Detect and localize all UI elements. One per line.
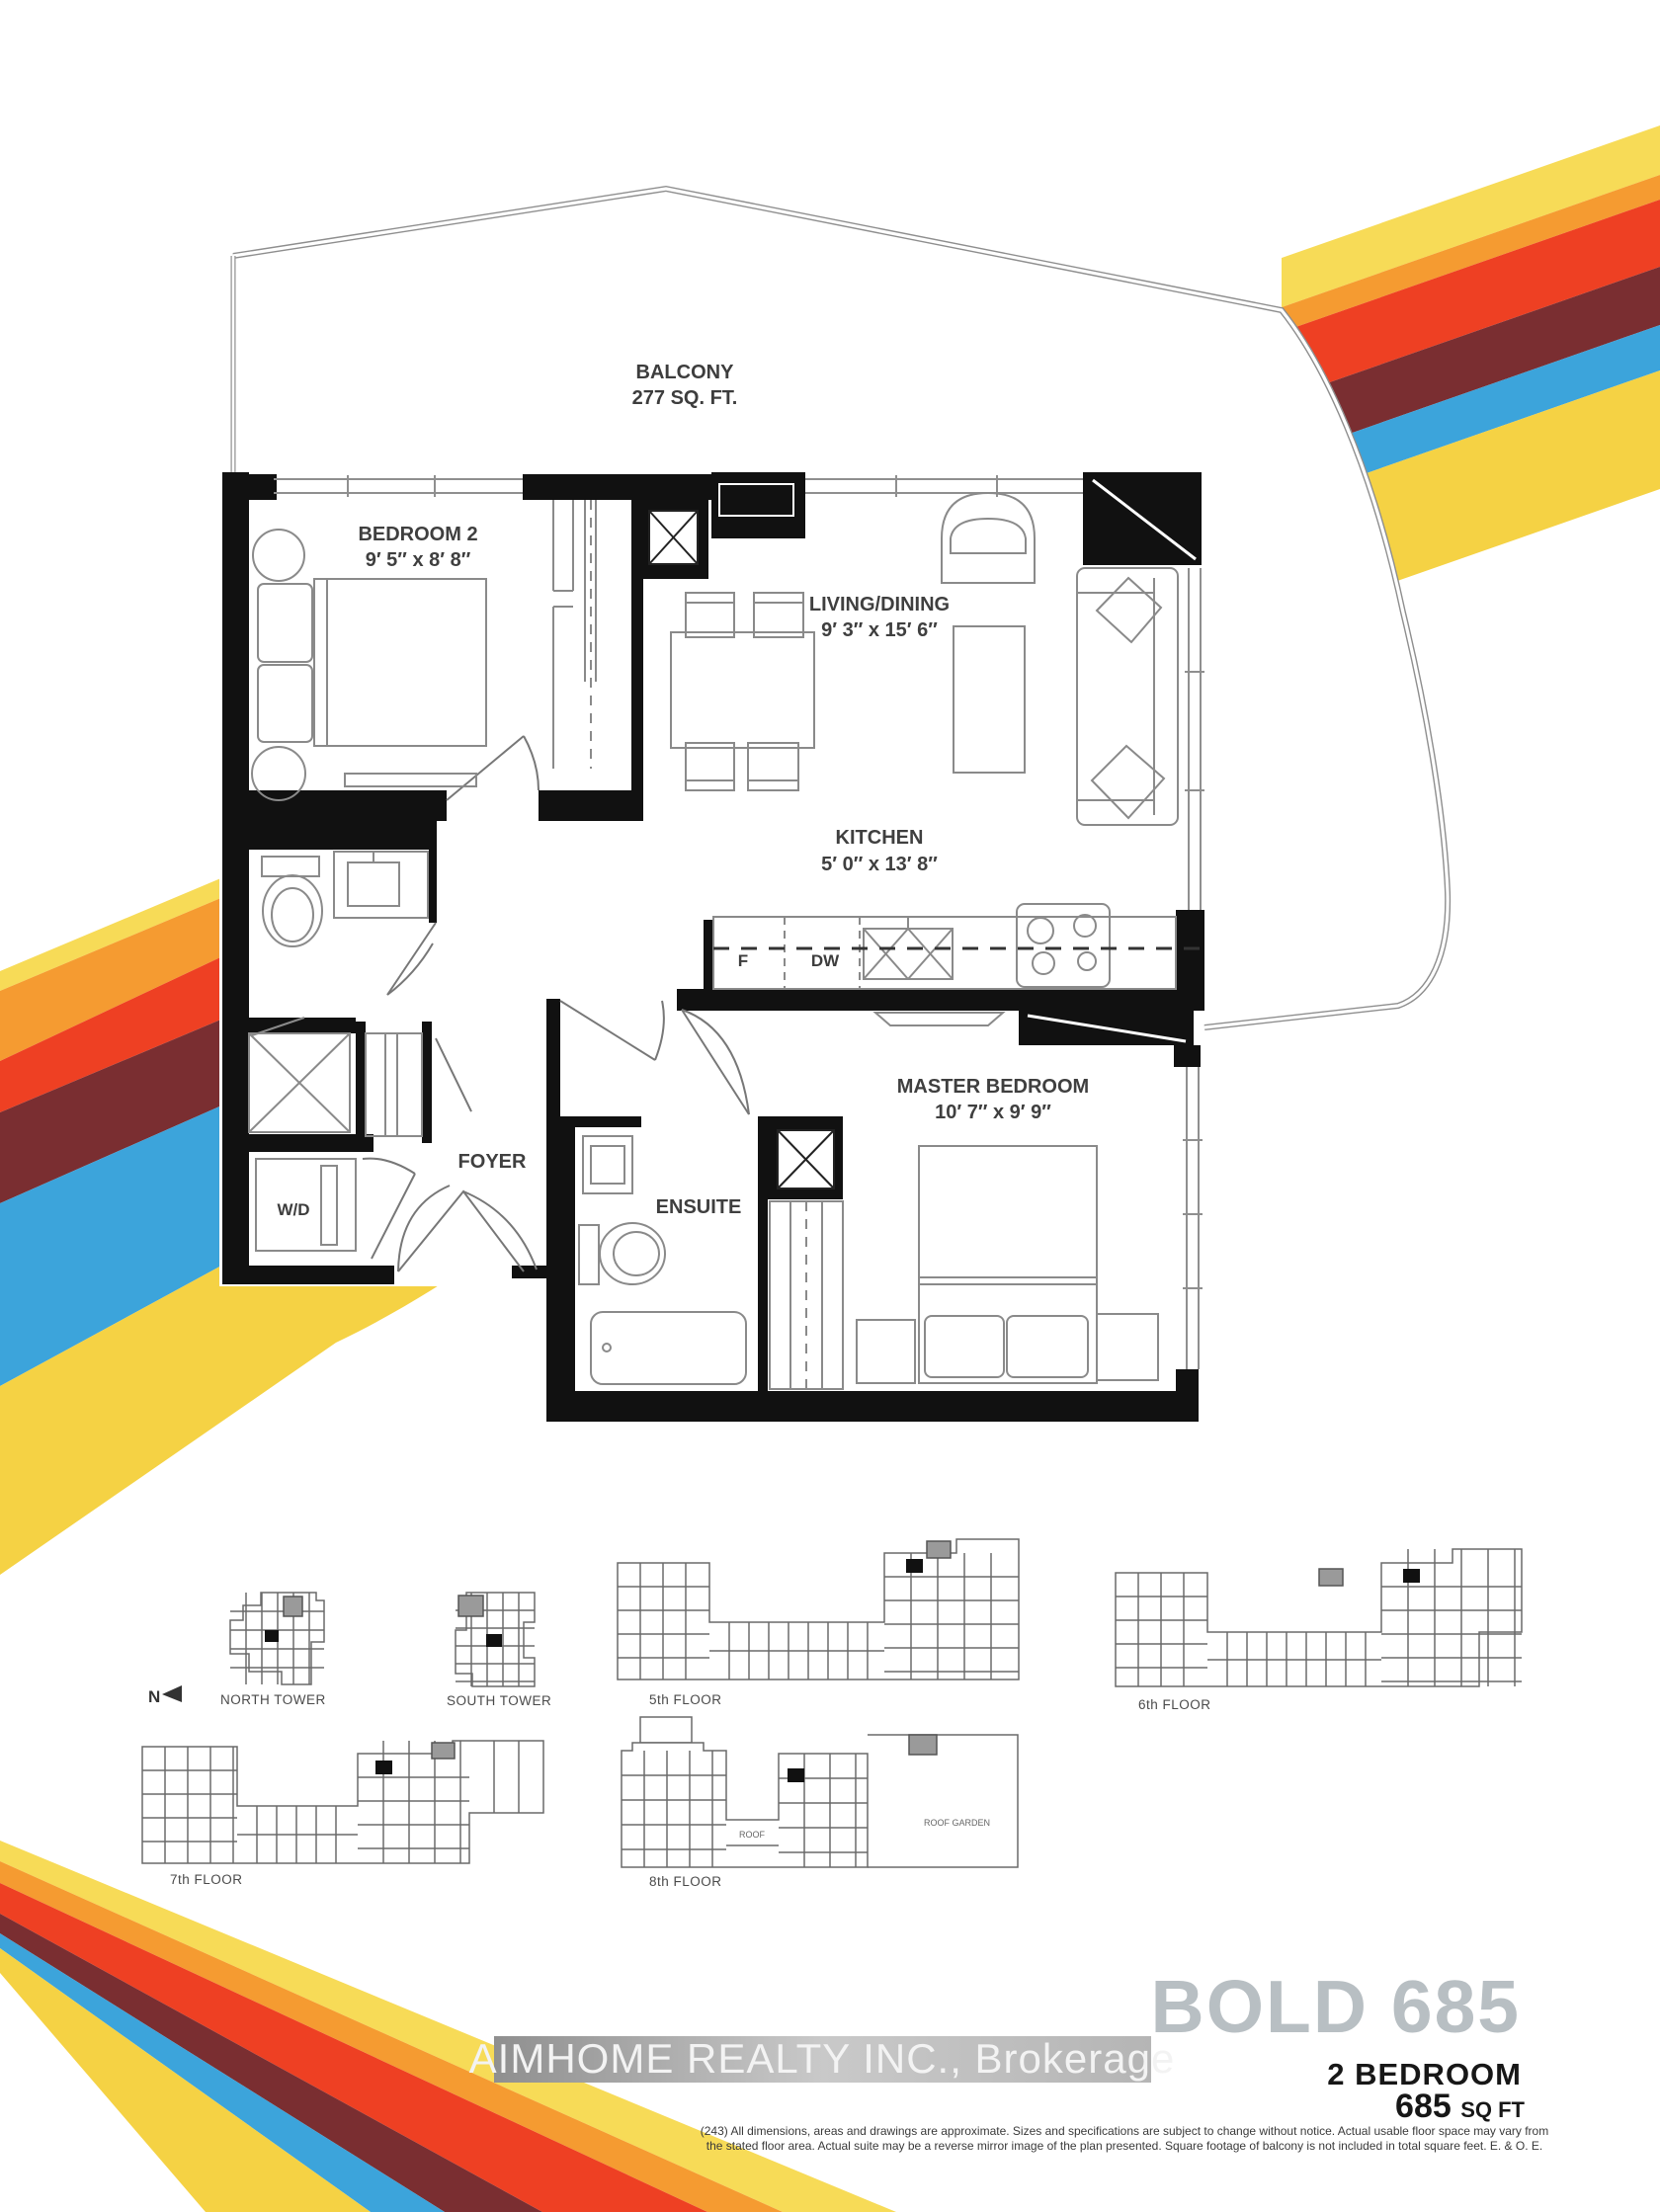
svg-text:the stated floor area. Actual: the stated floor area. Actual suite may … xyxy=(706,2139,1542,2153)
svg-text:KITCHEN: KITCHEN xyxy=(836,827,924,849)
svg-text:BOLD 685: BOLD 685 xyxy=(1151,1965,1521,2048)
svg-text:10′ 7″ x 9′ 9″: 10′ 7″ x 9′ 9″ xyxy=(935,1102,1051,1123)
svg-text:685 SQ FT: 685 SQ FT xyxy=(1395,2088,1526,2125)
svg-text:F: F xyxy=(738,951,748,970)
svg-text:LIVING/DINING: LIVING/DINING xyxy=(809,594,950,615)
svg-text:(243) All dimensions, areas an: (243) All dimensions, areas and drawings… xyxy=(701,2124,1548,2138)
svg-text:BALCONY: BALCONY xyxy=(636,362,735,383)
svg-text:DW: DW xyxy=(811,951,840,970)
svg-text:AIMHOME REALTY INC., Brokerage: AIMHOME REALTY INC., Brokerage xyxy=(469,2035,1176,2082)
svg-text:277 SQ. FT.: 277 SQ. FT. xyxy=(632,387,738,409)
svg-text:5′ 0″ x 13′ 8″: 5′ 0″ x 13′ 8″ xyxy=(821,854,938,875)
svg-text:8th FLOOR: 8th FLOOR xyxy=(649,1874,722,1889)
svg-text:ROOF GARDEN: ROOF GARDEN xyxy=(924,1818,990,1828)
svg-text:NORTH TOWER: NORTH TOWER xyxy=(220,1692,326,1707)
svg-text:BEDROOM 2: BEDROOM 2 xyxy=(358,524,477,545)
svg-text:N: N xyxy=(148,1687,160,1706)
svg-text:9′ 3″ x 15′ 6″: 9′ 3″ x 15′ 6″ xyxy=(821,619,938,641)
svg-text:2 BEDROOM: 2 BEDROOM xyxy=(1327,2057,1522,2091)
svg-text:MASTER BEDROOM: MASTER BEDROOM xyxy=(897,1076,1089,1098)
svg-text:ROOF: ROOF xyxy=(739,1830,766,1840)
svg-text:7th FLOOR: 7th FLOOR xyxy=(170,1872,243,1887)
svg-text:FOYER: FOYER xyxy=(458,1151,527,1173)
svg-text:SOUTH TOWER: SOUTH TOWER xyxy=(447,1693,551,1708)
svg-text:W/D: W/D xyxy=(277,1200,309,1219)
svg-text:5th FLOOR: 5th FLOOR xyxy=(649,1692,722,1707)
svg-text:9′ 5″ x 8′ 8″: 9′ 5″ x 8′ 8″ xyxy=(366,549,471,571)
svg-text:6th FLOOR: 6th FLOOR xyxy=(1138,1697,1211,1712)
svg-text:ENSUITE: ENSUITE xyxy=(656,1196,742,1218)
